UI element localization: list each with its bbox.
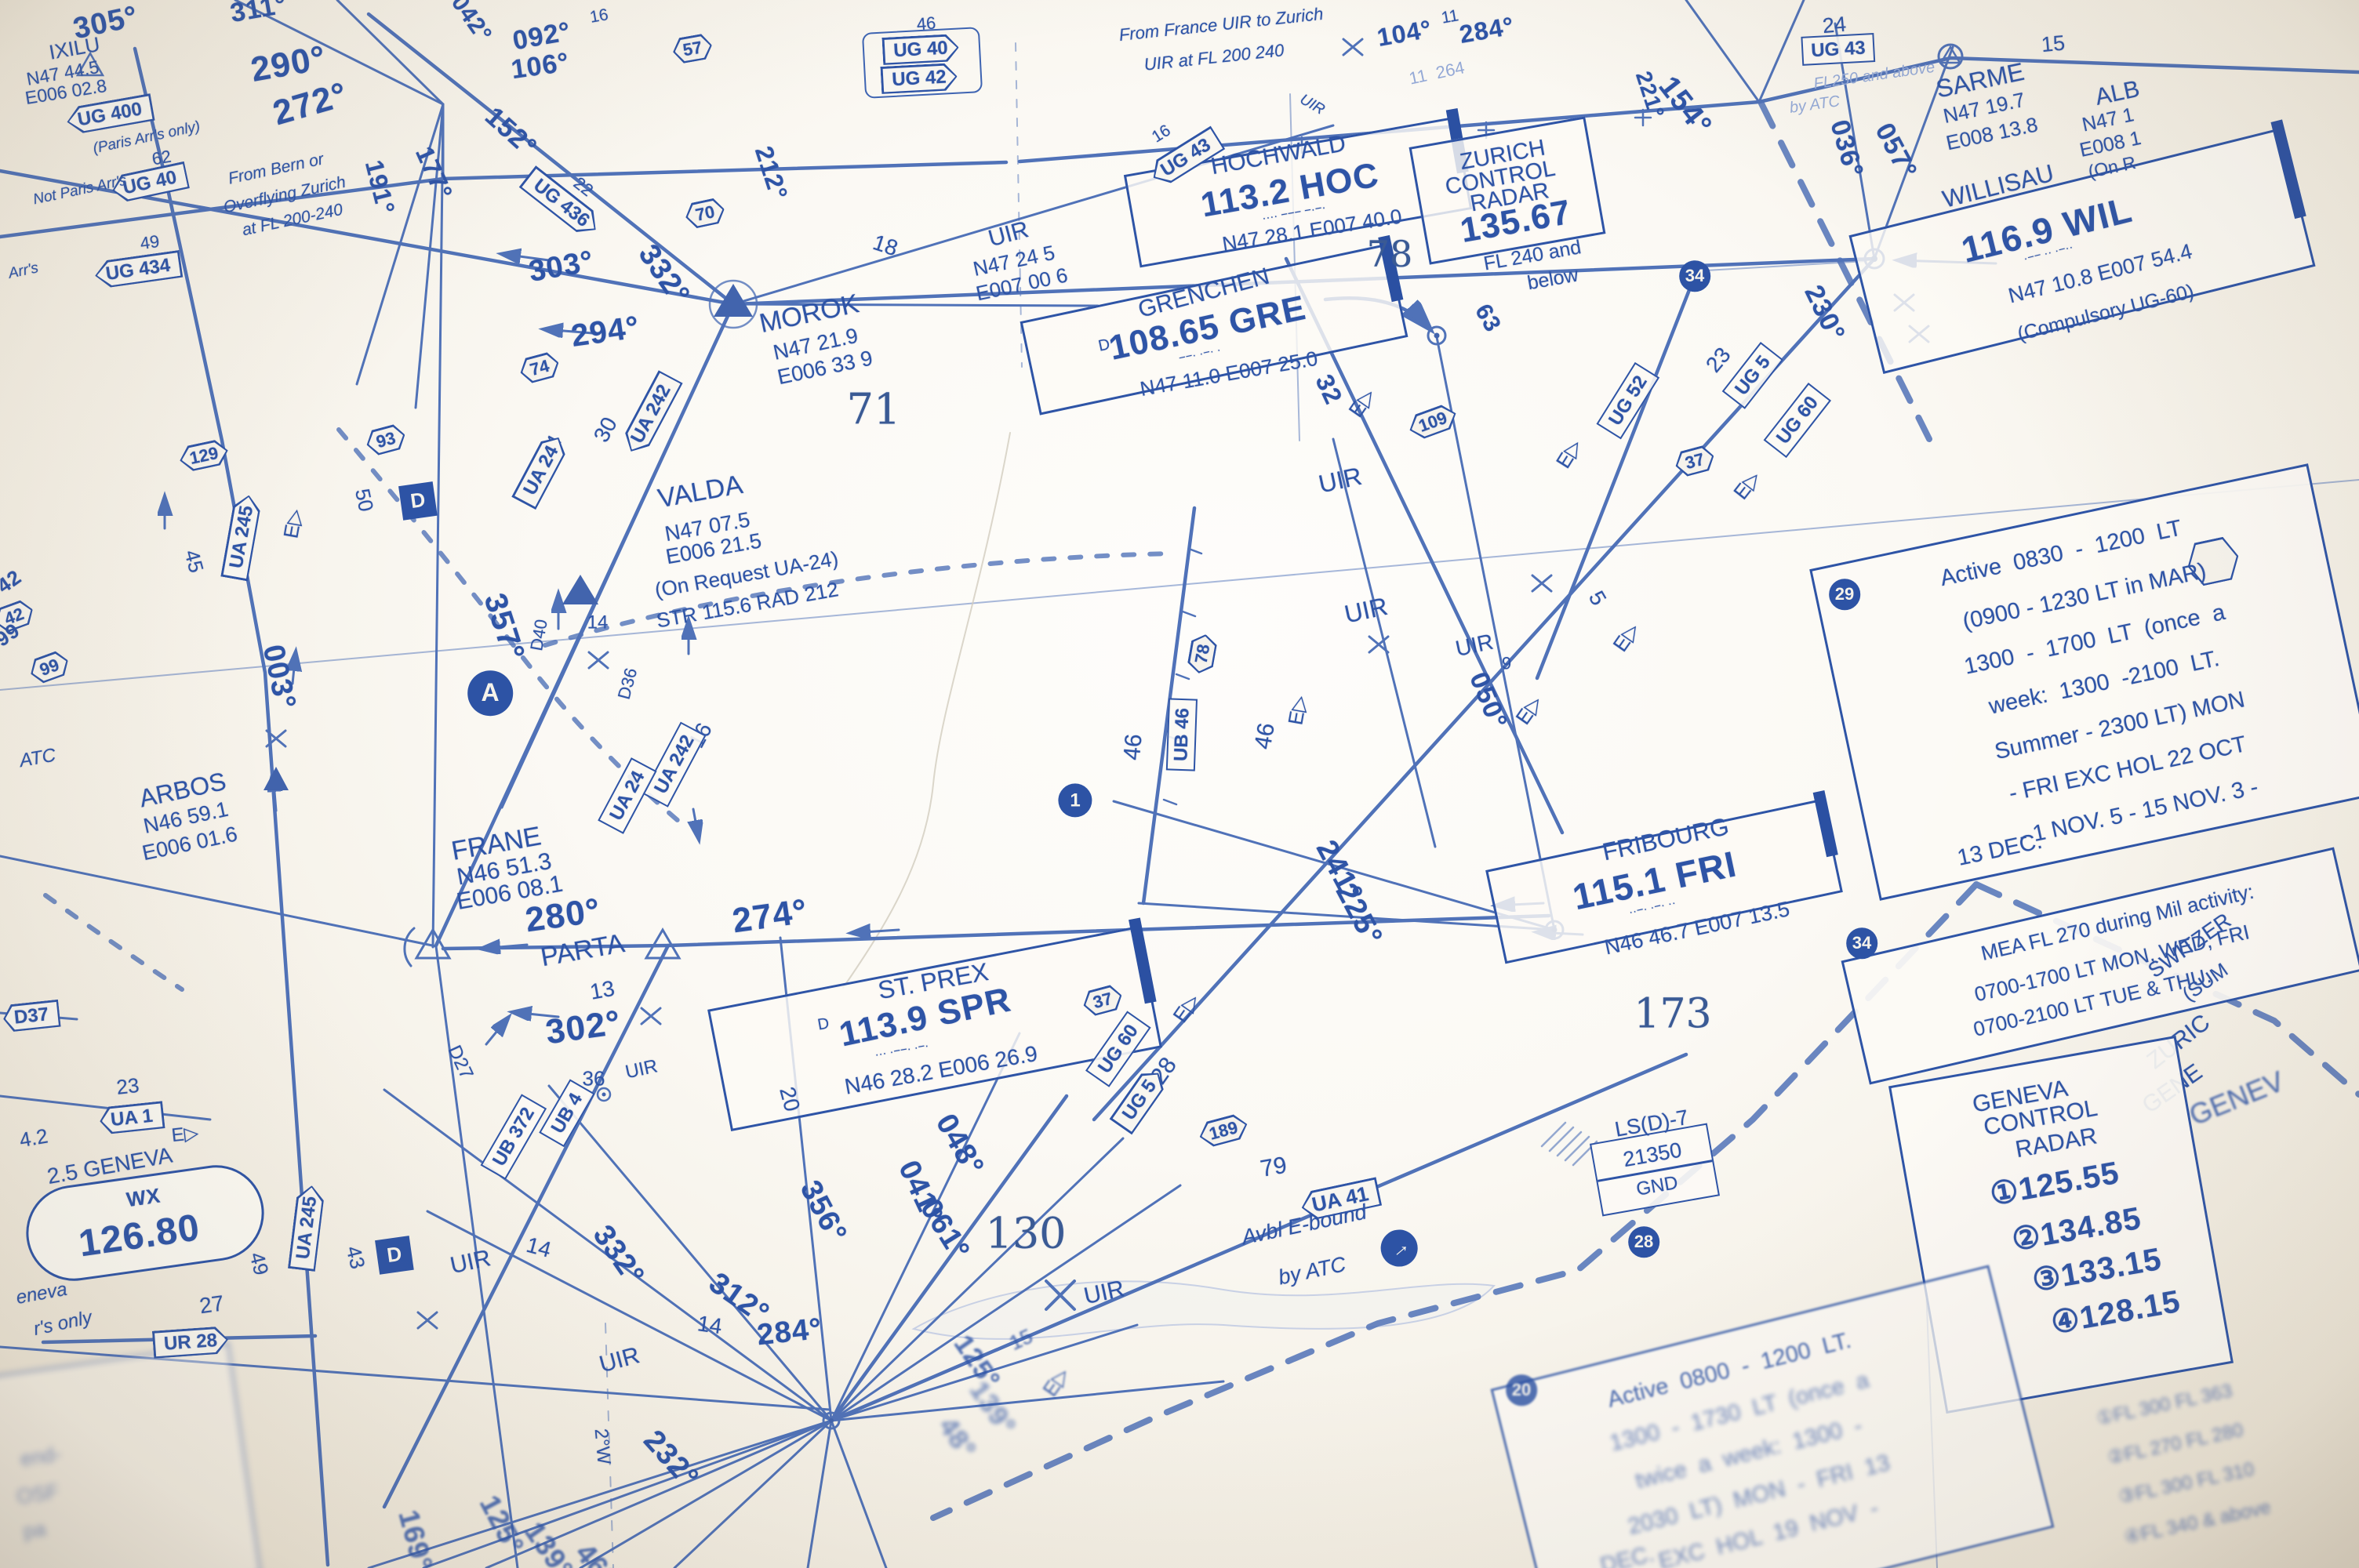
circled-20: 20 [1506, 1374, 1537, 1406]
mileage-46-a: 46 [916, 13, 936, 33]
geneva-wx-label: WX [125, 1185, 162, 1210]
mileage-24: 24 [1822, 13, 1847, 38]
mileage-14-c: 14 [587, 612, 609, 632]
circled-28: 28 [1628, 1226, 1659, 1258]
chart-photo: IXILUN47 44.5E006 02.8305°311°290°272°UG… [0, 0, 2359, 1568]
mileage-14-b: 14 [696, 1312, 724, 1338]
dsquare-2: D [375, 1236, 414, 1275]
circled-34-b: 34 [1846, 927, 1877, 959]
mileage-46-b: 46 [1120, 733, 1147, 761]
frag-4-2: 4.2 [18, 1125, 49, 1151]
lake-outline [914, 1281, 1494, 1339]
lat-50: 50 [351, 487, 377, 514]
mileage-46-c: 46 [1251, 721, 1280, 751]
mileage-9: 9 [1502, 654, 1511, 672]
hatch-marks [1542, 1123, 1597, 1165]
airway-ur28: UR 28 [152, 1326, 229, 1359]
compulsory-a: A [467, 670, 513, 716]
airway-ug42: UG 42 [880, 63, 958, 94]
mileage-23-b: 23 [115, 1075, 140, 1098]
gridnum-173: 173 [1634, 993, 1711, 1036]
terrain-line [843, 433, 1010, 988]
east-arrow-j: E▷ [171, 1123, 200, 1146]
mileage-13: 13 [588, 977, 616, 1004]
mileage-79: 79 [1259, 1153, 1289, 1182]
mileage-15-a: 15 [2041, 32, 2066, 56]
circled-29: 29 [1829, 579, 1860, 610]
gridnum-78: 78 [1367, 235, 1413, 273]
mileage-11: 11 [1440, 7, 1459, 27]
airway-ug43-a: UG 43 [1801, 33, 1875, 66]
gridnum-130: 130 [985, 1212, 1066, 1257]
meridian-2w: 2°W [591, 1428, 613, 1465]
blur-frag-3: pa [22, 1518, 47, 1542]
gridnum-71: 71 [847, 388, 901, 433]
mileage-49: 49 [139, 232, 160, 252]
airway-ug40: UG 40 [881, 34, 959, 65]
mileage-16-a: 16 [589, 6, 610, 27]
bearing-284-b: 284° [756, 1314, 824, 1352]
dsquare-1: D [398, 481, 438, 521]
airway-ud37: D37 [2, 1000, 60, 1033]
scallop-boundary [45, 430, 1172, 989]
east-arrow-d: E▷ [1285, 694, 1310, 727]
east-arrow-i: E▷ [280, 507, 306, 540]
mileage-27: 27 [198, 1291, 226, 1317]
circled-34-a: 34 [1679, 260, 1710, 292]
airway-ub46: UB 46 [1166, 698, 1198, 771]
mileage-36: 36 [583, 1068, 605, 1089]
